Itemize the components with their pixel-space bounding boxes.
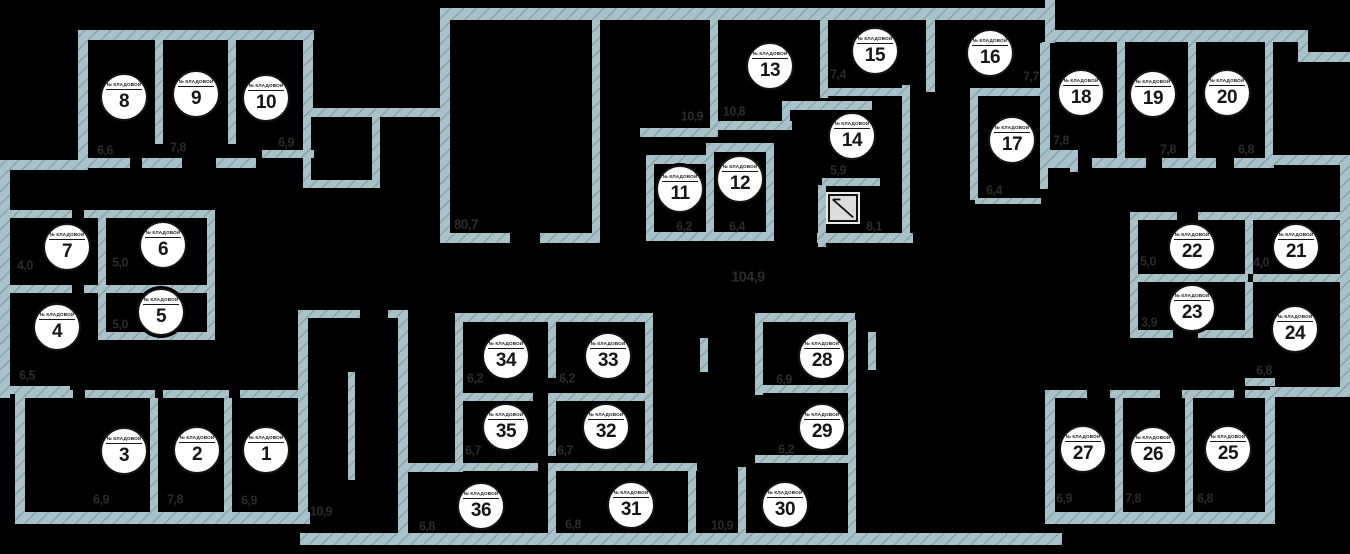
room-number: 27 [1073,444,1093,463]
room-number: 18 [1071,88,1091,107]
room-marker-1[interactable]: № КЛАДОВОЙ1 [242,426,290,474]
room-number: 5 [156,307,166,326]
area-label-room-7: 4,0 [17,258,33,273]
area-label-room-29: 6,2 [778,442,794,457]
room-marker-6[interactable]: № КЛАДОВОЙ6 [139,221,187,269]
room-marker-caption: № КЛАДОВОЙ [106,437,143,444]
elevator-icon [828,194,858,222]
room-marker-3[interactable]: № КЛАДОВОЙ3 [100,427,148,475]
room-marker-28[interactable]: № КЛАДОВОЙ28 [798,332,846,380]
area-label-room-28: 6,9 [776,372,792,387]
room-marker-7[interactable]: № КЛАДОВОЙ7 [43,223,91,271]
room-marker-caption: № КЛАДОВОЙ [662,175,699,182]
area-label-room-16: 7,7 [1023,69,1039,84]
area-label-room-34: 6,2 [467,371,483,386]
room-marker-36[interactable]: № КЛАДОВОЙ36 [457,482,505,530]
room-marker-24[interactable]: № КЛАДОВОЙ24 [1271,305,1319,353]
room-marker-caption: № КЛАДОВОЙ [1135,80,1172,87]
area-label-room-10: 6,9 [278,135,294,150]
room-marker-33[interactable]: № КЛАДОВОЙ33 [584,332,632,380]
area-label-room-27: 6,9 [1056,491,1072,506]
room-marker-caption: № КЛАДОВОЙ [613,491,650,498]
area-label-room-11: 6,2 [676,219,692,234]
room-marker-caption: № КЛАДОВОЙ [488,413,525,420]
area-label-corridor-lower: 10,9 [711,518,733,533]
room-marker-12[interactable]: № КЛАДОВОЙ12 [716,155,764,203]
room-marker-8[interactable]: № КЛАДОВОЙ8 [100,73,148,121]
area-label-room-26: 7,8 [1125,491,1141,506]
room-marker-caption: № КЛАДОВОЙ [178,80,215,87]
area-label-hall-left: 80,7 [454,216,478,232]
room-marker-19[interactable]: № КЛАДОВОЙ19 [1129,70,1177,118]
room-number: 29 [812,422,832,441]
room-marker-13[interactable]: № КЛАДОВОЙ13 [746,42,794,90]
room-number: 34 [496,351,516,370]
area-label-room-3: 6,9 [93,492,109,507]
room-marker-18[interactable]: № КЛАДОВОЙ18 [1057,69,1105,117]
area-label-room-31: 6,8 [565,517,581,532]
room-marker-caption: № КЛАДОВОЙ [463,492,500,499]
room-marker-14[interactable]: № КЛАДОВОЙ14 [828,112,876,160]
area-label-room-33: 6,2 [559,371,575,386]
area-label-room-17: 6,4 [986,183,1002,198]
room-marker-caption: № КЛАДОВОЙ [1278,233,1315,240]
room-marker-21[interactable]: № КЛАДОВОЙ21 [1272,223,1320,271]
room-number: 6 [158,240,168,259]
room-marker-caption: № КЛАДОВОЙ [588,413,625,420]
room-number: 13 [760,61,780,80]
room-marker-27[interactable]: № КЛАДОВОЙ27 [1059,425,1107,473]
room-marker-caption: № КЛАДОВОЙ [143,298,180,305]
area-label-room-15: 7,4 [830,67,846,82]
room-marker-20[interactable]: № КЛАДОВОЙ20 [1203,69,1251,117]
area-label-room-18: 7,8 [1053,133,1069,148]
room-number: 7 [62,242,72,261]
room-marker-caption: № КЛАДОВОЙ [1065,435,1102,442]
room-number: 25 [1218,444,1238,463]
area-label-room-35: 6,7 [465,443,481,458]
room-marker-caption: № КЛАДОВОЙ [994,126,1031,133]
room-number: 8 [119,92,129,111]
area-label-room-5: 5,0 [112,317,128,332]
room-number: 2 [192,445,202,464]
room-marker-caption: № КЛАДОВОЙ [49,233,86,240]
room-number: 24 [1285,324,1305,343]
room-number: 11 [670,184,689,203]
area-label-room-4: 6,5 [19,368,35,383]
area-label-room-12: 6,4 [729,219,745,234]
room-marker-4[interactable]: № КЛАДОВОЙ4 [33,303,81,351]
area-label-stairwell: 10,9 [310,504,332,519]
room-marker-9[interactable]: № КЛАДОВОЙ9 [172,70,220,118]
room-marker-caption: № КЛАДОВОЙ [106,83,143,90]
room-number: 20 [1217,88,1237,107]
room-number: 16 [980,48,1000,67]
room-marker-caption: № КЛАДОВОЙ [804,342,841,349]
room-marker-caption: № КЛАДОВОЙ [1209,79,1246,86]
room-marker-23[interactable]: № КЛАДОВОЙ23 [1168,284,1216,332]
area-label-room-21: 4,0 [1253,255,1269,270]
room-marker-2[interactable]: № КЛАДОВОЙ2 [173,426,221,474]
area-label-room-9: 7,8 [170,140,186,155]
room-marker-caption: № КЛАДОВОЙ [248,84,285,91]
room-number: 9 [191,89,201,108]
room-marker-17[interactable]: № КЛАДОВОЙ17 [988,116,1036,164]
area-label-room-22: 5,0 [1140,254,1156,269]
room-marker-caption: № КЛАДОВОЙ [1210,435,1247,442]
room-marker-35[interactable]: № КЛАДОВОЙ35 [482,403,530,451]
room-marker-22[interactable]: № КЛАДОВОЙ22 [1168,223,1216,271]
room-marker-16[interactable]: № КЛАДОВОЙ16 [966,29,1014,77]
room-marker-caption: № КЛАДОВОЙ [857,37,894,44]
room-marker-caption: № КЛАДОВОЙ [179,436,216,443]
room-number: 1 [261,445,271,464]
area-label-room-36: 6,8 [419,519,435,534]
area-label-room-23: 3,9 [1141,315,1157,330]
room-marker-caption: № КЛАДОВОЙ [1277,315,1314,322]
area-label-room-20: 6,8 [1238,142,1254,157]
room-number: 36 [471,501,491,520]
room-marker-caption: № КЛАДОВОЙ [834,122,871,129]
room-marker-26[interactable]: № КЛАДОВОЙ26 [1129,426,1177,474]
room-marker-caption: № КЛАДОВОЙ [752,52,789,59]
room-number: 14 [842,131,862,150]
room-number: 19 [1143,89,1163,108]
room-marker-15[interactable]: № КЛАДОВОЙ15 [851,27,899,75]
room-number: 4 [52,322,62,341]
room-number: 22 [1182,242,1202,261]
area-label-room-24: 6,8 [1256,363,1272,378]
area-label-room-32: 6,7 [557,443,573,458]
room-marker-caption: № КЛАДОВОЙ [488,342,525,349]
room-marker-caption: № КЛАДОВОЙ [1063,79,1100,86]
room-marker-caption: № КЛАДОВОЙ [722,165,759,172]
room-marker-caption: № КЛАДОВОЙ [590,342,627,349]
room-marker-10[interactable]: № КЛАДОВОЙ10 [242,74,290,122]
room-marker-32[interactable]: № КЛАДОВОЙ32 [582,403,630,451]
room-number: 23 [1182,303,1202,322]
room-marker-30[interactable]: № КЛАДОВОЙ30 [761,481,809,529]
room-marker-caption: № КЛАДОВОЙ [804,413,841,420]
area-label-elevator-area: 8,1 [866,219,882,234]
room-number: 12 [730,174,750,193]
room-marker-caption: № КЛАДОВОЙ [1174,233,1211,240]
stairs-divider [348,372,355,480]
room-marker-caption: № КЛАДОВОЙ [1174,294,1211,301]
area-label-room-8: 6,6 [97,143,113,158]
room-number: 15 [865,46,885,65]
room-marker-caption: № КЛАДОВОЙ [145,231,182,238]
room-marker-5[interactable]: № КЛАДОВОЙ5 [137,288,185,336]
area-label-room-19: 7,8 [1160,142,1176,157]
room-marker-caption: № КЛАДОВОЙ [767,491,804,498]
room-number: 3 [119,446,129,465]
room-number: 26 [1143,445,1163,464]
room-number: 35 [496,422,516,441]
area-label-room-1: 6,9 [241,493,257,508]
room-number: 28 [812,351,832,370]
room-number: 10 [256,93,276,112]
room-marker-caption: № КЛАДОВОЙ [248,436,285,443]
room-marker-31[interactable]: № КЛАДОВОЙ31 [607,481,655,529]
room-number: 17 [1002,135,1022,154]
room-marker-29[interactable]: № КЛАДОВОЙ29 [798,403,846,451]
room-marker-caption: № КЛАДОВОЙ [972,39,1009,46]
area-label-room-25: 6,8 [1197,491,1213,506]
room-number: 33 [598,351,618,370]
area-label-corridor-main: 104,9 [731,269,764,286]
room-marker-34[interactable]: № КЛАДОВОЙ34 [482,332,530,380]
room-number: 31 [621,500,641,519]
room-marker-11[interactable]: № КЛАДОВОЙ11 [656,165,704,213]
area-label-room-6: 5,0 [112,255,128,270]
area-label-corridor-upper: 10,9 [681,109,703,124]
floor-plan: 6,67,86,94,05,05,06,56,97,86,910,980,710… [0,0,1350,554]
area-label-room-2: 7,8 [167,492,183,507]
room-marker-caption: № КЛАДОВОЙ [39,313,76,320]
room-number: 32 [596,422,616,441]
room-number: 21 [1286,242,1306,261]
room-marker-25[interactable]: № КЛАДОВОЙ25 [1204,425,1252,473]
area-label-room-14: 5,9 [830,163,846,178]
room-number: 30 [775,500,795,519]
room-marker-caption: № КЛАДОВОЙ [1135,436,1172,443]
area-label-room-13: 10,8 [723,104,745,119]
